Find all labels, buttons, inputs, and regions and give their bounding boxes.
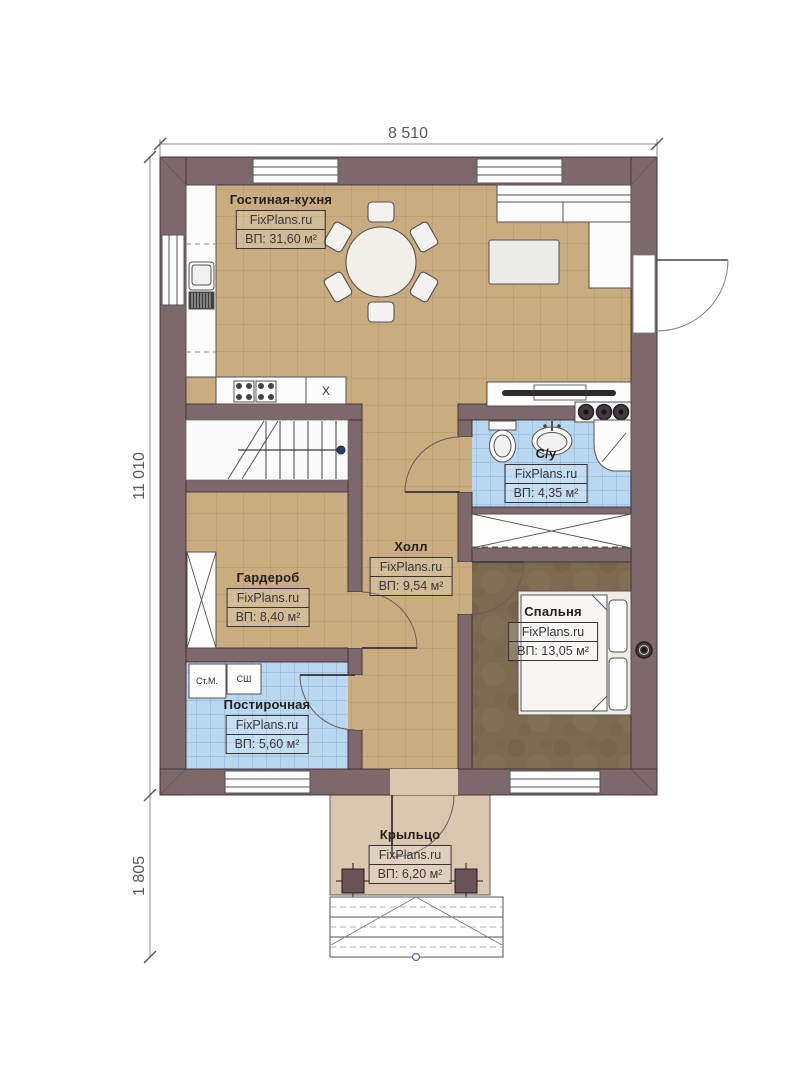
floor-plan-page: X	[0, 0, 792, 1080]
window-laundry	[225, 771, 310, 793]
room-name-hall: Холл	[370, 539, 453, 554]
brand-row: FixPlans.ru	[506, 465, 587, 484]
room-info-living: FixPlans.ru ВП: 31,60 м²	[236, 210, 326, 249]
corner-shower	[594, 420, 631, 471]
room-name-laundry: Постирочная	[224, 697, 311, 712]
area-row: ВП: 13,05 м²	[509, 642, 597, 660]
area-row: ВП: 4,35 м²	[506, 484, 587, 502]
coffee-table	[489, 240, 559, 284]
area-row: ВП: 31,60 м²	[237, 230, 325, 248]
dim-height: 11 010	[131, 452, 148, 500]
wardrobe-cabinet	[187, 552, 216, 648]
dim-width: 8 510	[388, 125, 428, 142]
tv	[502, 390, 616, 396]
room-name-porch: Крыльцо	[369, 827, 452, 842]
porch-steps	[330, 897, 503, 961]
room-info-hall: FixPlans.ru ВП: 9,54 м²	[370, 557, 453, 596]
pillow	[609, 600, 627, 652]
staircase	[186, 420, 348, 480]
room-label-living: Гостиная-кухня FixPlans.ru ВП: 31,60 м²	[230, 192, 332, 249]
dryer-label: СШ	[237, 674, 252, 684]
vanity-cabinet	[575, 402, 631, 422]
window-bedroom	[510, 771, 600, 793]
brand-row: FixPlans.ru	[237, 211, 325, 230]
area-row: ВП: 8,40 м²	[228, 608, 309, 626]
door-terrace	[657, 260, 728, 331]
builtin-closet	[472, 514, 631, 548]
room-info-laundry: FixPlans.ru ВП: 5,60 м²	[226, 715, 309, 754]
brand-row: FixPlans.ru	[228, 589, 309, 608]
room-name-wardrobe: Гардероб	[227, 570, 310, 585]
window-top-left	[253, 159, 338, 183]
room-label-bedroom: Спальня FixPlans.ru ВП: 13,05 м²	[508, 604, 598, 661]
stair-direction-marker	[337, 446, 345, 454]
washing-machine-label: Ст.М.	[196, 676, 218, 686]
room-label-laundry: Постирочная FixPlans.ru ВП: 5,60 м²	[224, 697, 311, 754]
room-info-bathroom: FixPlans.ru ВП: 4,35 м²	[505, 464, 588, 503]
room-label-bathroom: С/у FixPlans.ru ВП: 4,35 м²	[505, 446, 588, 503]
brand-row: FixPlans.ru	[370, 846, 451, 865]
room-info-porch: FixPlans.ru ВП: 6,20 м²	[369, 845, 452, 884]
room-name-bathroom: С/у	[505, 446, 588, 461]
brand-row: FixPlans.ru	[371, 558, 452, 577]
room-label-hall: Холл FixPlans.ru ВП: 9,54 м²	[370, 539, 453, 596]
laundry-appliances: Ст.М. СШ	[189, 664, 261, 698]
room-label-wardrobe: Гардероб FixPlans.ru ВП: 8,40 м²	[227, 570, 310, 627]
area-row: ВП: 6,20 м²	[370, 865, 451, 883]
room-info-wardrobe: FixPlans.ru ВП: 8,40 м²	[227, 588, 310, 627]
kitchen-unit-label: X	[322, 384, 330, 398]
brand-row: FixPlans.ru	[227, 716, 308, 735]
room-label-porch: Крыльцо FixPlans.ru ВП: 6,20 м²	[369, 827, 452, 884]
room-name-bedroom: Спальня	[508, 604, 598, 619]
window-top-right	[477, 159, 562, 183]
area-row: ВП: 9,54 м²	[371, 577, 452, 595]
area-row: ВП: 5,60 м²	[227, 735, 308, 753]
brand-row: FixPlans.ru	[509, 623, 597, 642]
dim-porch: 1 805	[131, 856, 148, 896]
wall-vent	[636, 642, 652, 658]
pillow	[609, 658, 627, 710]
window-left-kitchen	[162, 235, 184, 305]
room-info-bedroom: FixPlans.ru ВП: 13,05 м²	[508, 622, 598, 661]
room-name-living: Гостиная-кухня	[230, 192, 332, 207]
